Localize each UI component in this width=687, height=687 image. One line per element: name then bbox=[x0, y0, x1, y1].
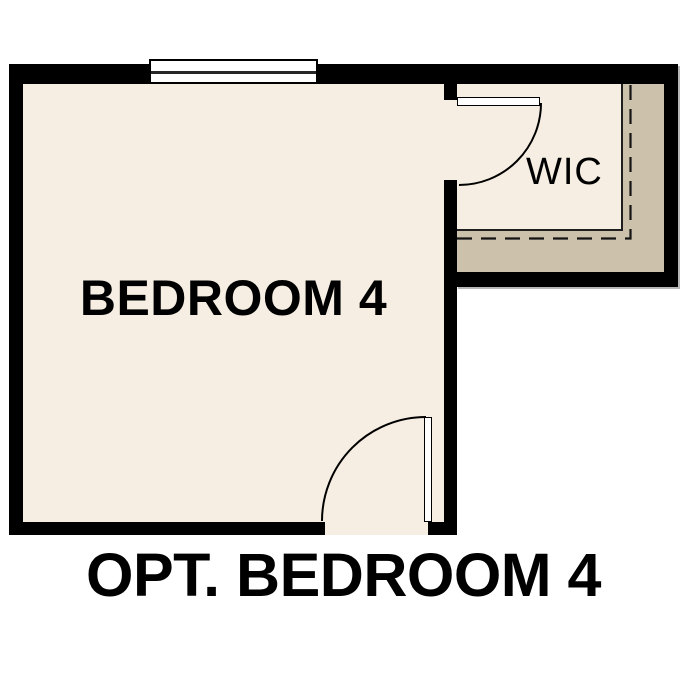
outer-edge-line-right bbox=[678, 66, 680, 289]
wall-outer-right bbox=[664, 64, 678, 287]
wall-left bbox=[9, 64, 23, 535]
outer-edge-line-bottom bbox=[458, 287, 680, 289]
wic-door-opening bbox=[444, 100, 457, 180]
wic-label: WIC bbox=[526, 153, 603, 191]
wall-wic-left-stub bbox=[444, 84, 457, 100]
bedroom4-label: BEDROOM 4 bbox=[23, 273, 444, 323]
window-divider bbox=[151, 71, 316, 74]
wall-bottom-left bbox=[9, 522, 325, 535]
floor-plan: BEDROOM 4 WIC OPT. BEDROOM 4 bbox=[0, 0, 687, 687]
bedroom-door-opening bbox=[325, 522, 428, 535]
wall-top bbox=[9, 64, 678, 84]
bedroom-door-leaf bbox=[424, 417, 432, 522]
wall-bedroom-right bbox=[444, 180, 457, 535]
plan-caption: OPT. BEDROOM 4 bbox=[0, 545, 687, 606]
wall-wic-bottom bbox=[444, 272, 678, 287]
window-icon bbox=[149, 59, 318, 84]
wic-door-leaf bbox=[457, 97, 540, 106]
